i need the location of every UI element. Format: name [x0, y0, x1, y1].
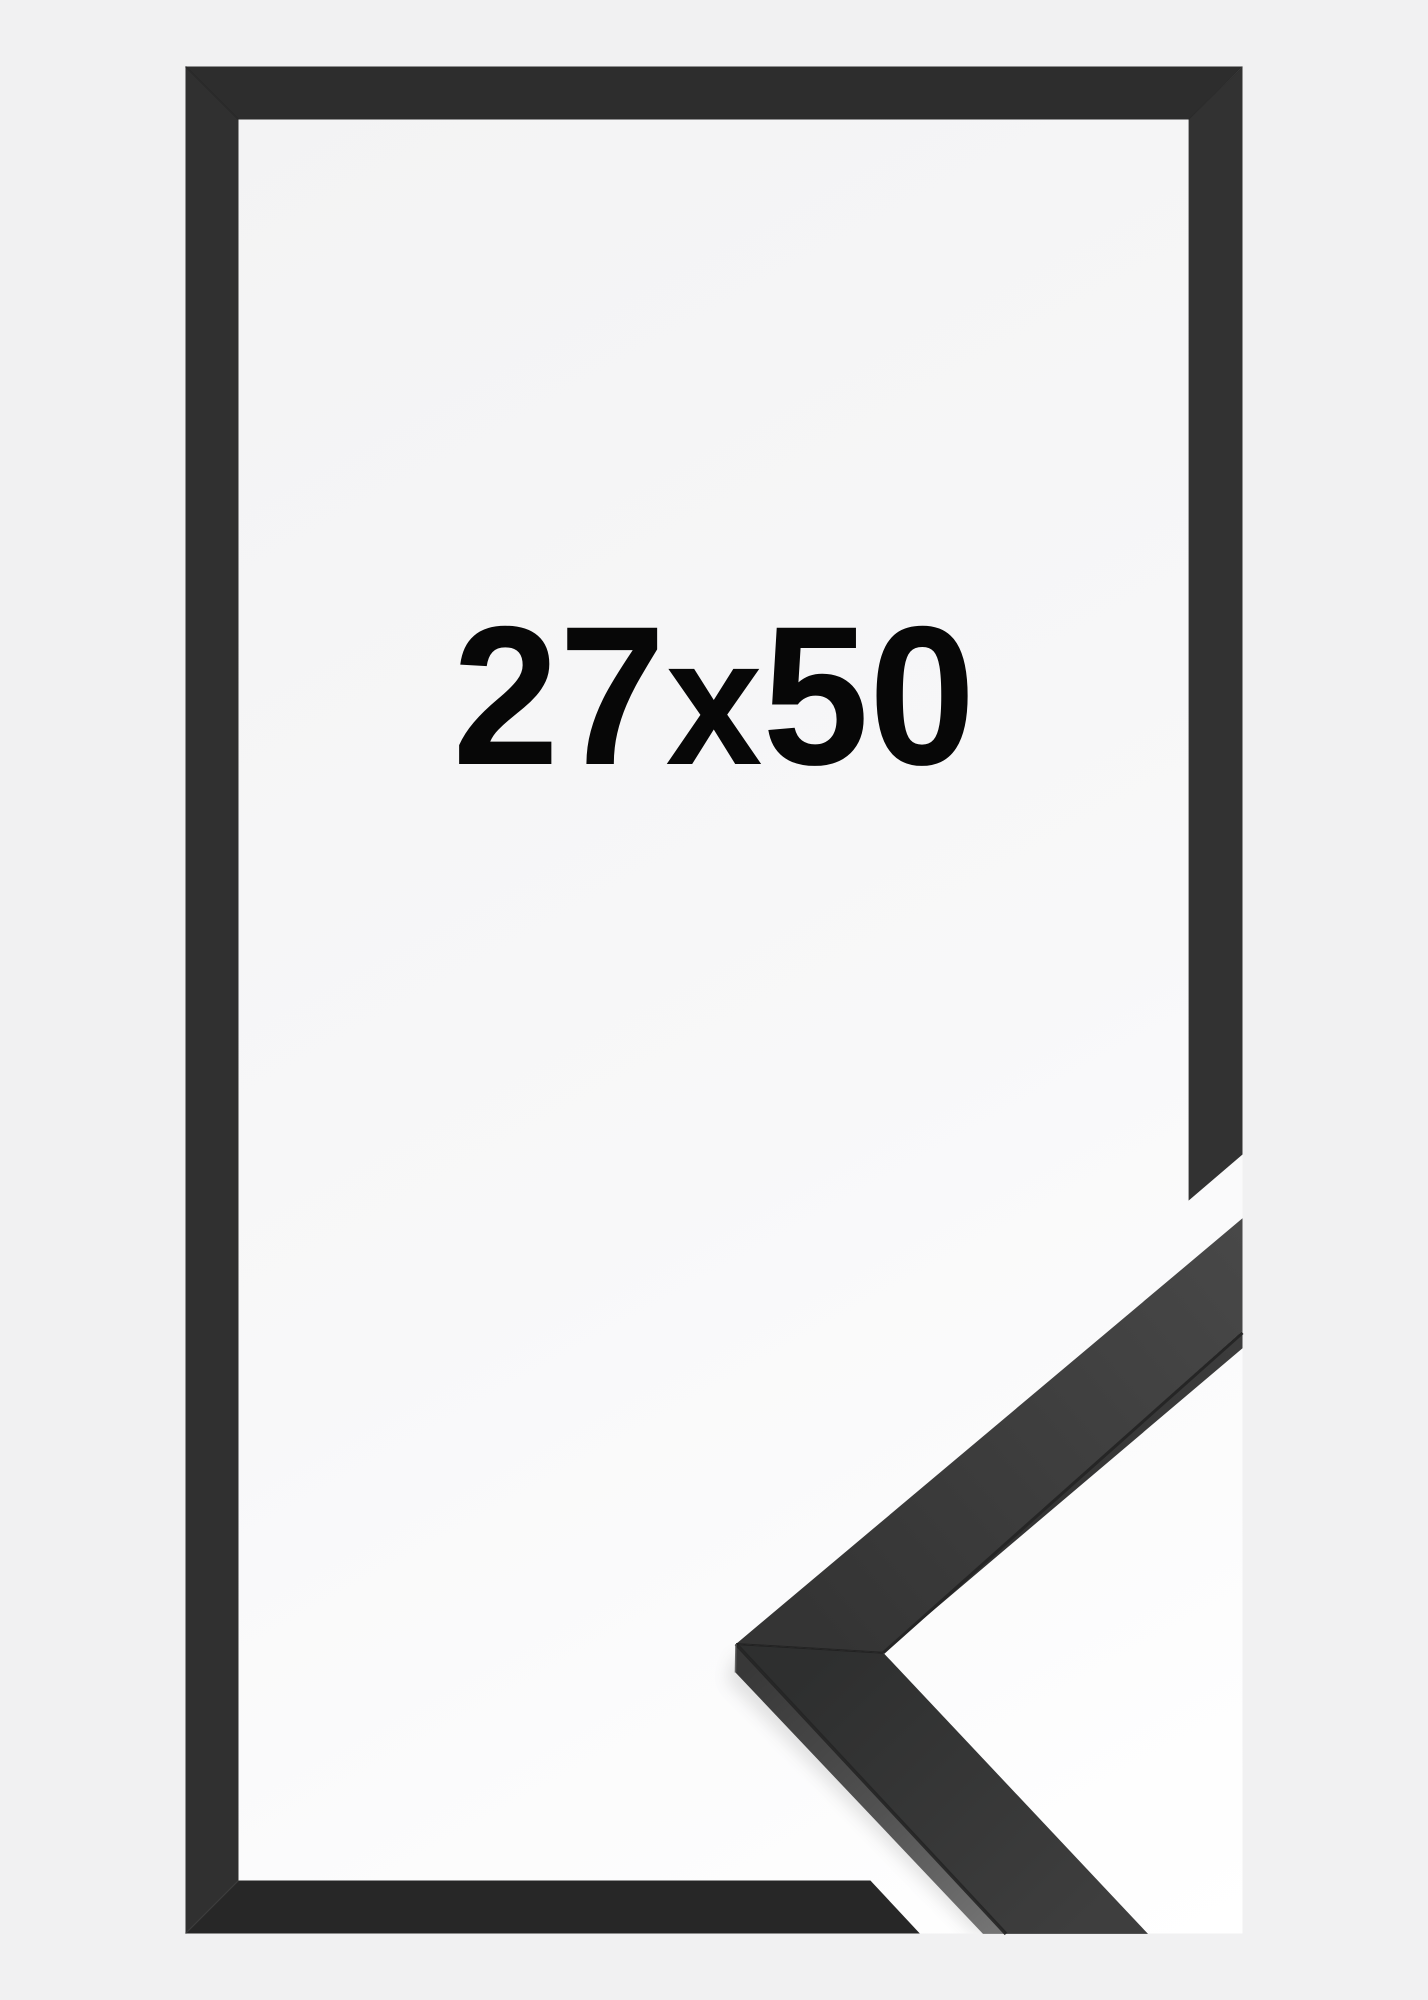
svg-text:27x50: 27x50 — [453, 585, 976, 806]
